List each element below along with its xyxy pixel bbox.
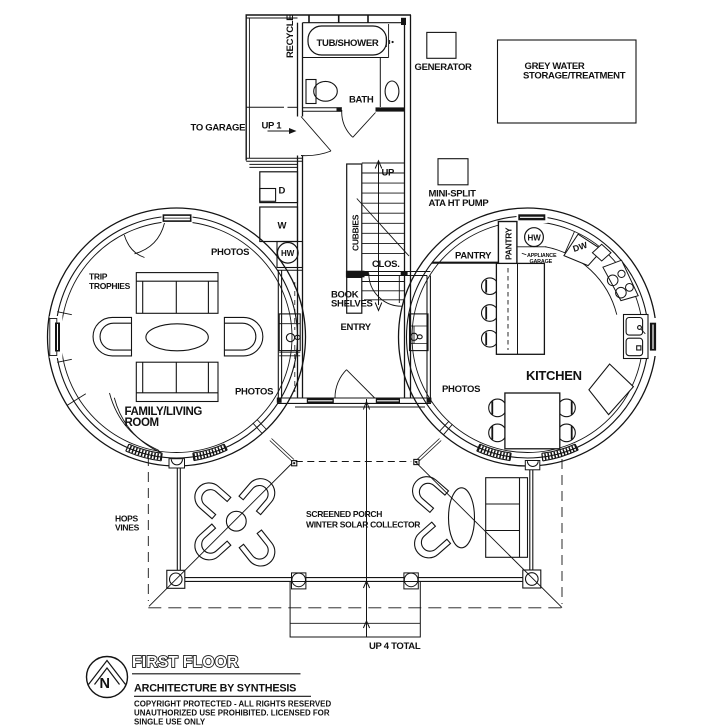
svg-text:GENERATOR: GENERATOR <box>415 62 473 73</box>
svg-text:PANTRY: PANTRY <box>455 251 492 262</box>
svg-text:UP 1: UP 1 <box>262 121 283 132</box>
svg-text:TUB/SHOWER: TUB/SHOWER <box>317 38 379 49</box>
svg-text:CUBBIES: CUBBIES <box>351 214 361 251</box>
svg-text:RECYCLE: RECYCLE <box>285 15 296 58</box>
svg-text:SINGLE USE ONLY: SINGLE USE ONLY <box>134 718 206 726</box>
svg-text:SHELVES: SHELVES <box>331 299 373 310</box>
svg-text:BATH: BATH <box>349 95 374 106</box>
svg-text:TROPHIES: TROPHIES <box>89 281 131 291</box>
svg-text:TO GARAGE: TO GARAGE <box>191 123 246 134</box>
svg-text:STORAGE/TREATMENT: STORAGE/TREATMENT <box>523 71 626 82</box>
svg-text:CLOS.: CLOS. <box>372 259 400 270</box>
svg-text:ENTRY: ENTRY <box>341 322 372 333</box>
svg-text:D: D <box>279 186 286 197</box>
svg-text:TRIP: TRIP <box>89 272 108 282</box>
svg-text:PHOTOS: PHOTOS <box>235 387 273 398</box>
svg-text:W: W <box>278 221 287 232</box>
svg-text:N: N <box>100 676 110 692</box>
svg-text:GARAGE: GARAGE <box>530 259 553 265</box>
svg-text:WINTER SOLAR COLLECTOR: WINTER SOLAR COLLECTOR <box>306 520 420 530</box>
svg-text:FIRST FLOOR: FIRST FLOOR <box>132 654 239 671</box>
svg-text:PHOTOS: PHOTOS <box>211 247 249 258</box>
svg-text:UNAUTHORIZED USE PROHIBITED. L: UNAUTHORIZED USE PROHIBITED. LICENSED FO… <box>134 709 330 718</box>
svg-text:PHOTOS: PHOTOS <box>442 384 480 395</box>
svg-text:VINES: VINES <box>115 523 140 533</box>
svg-text:UP 4 TOTAL: UP 4 TOTAL <box>369 641 421 652</box>
svg-text:HW: HW <box>281 249 295 258</box>
svg-text:ARCHITECTURE BY SYNTHESIS: ARCHITECTURE BY SYNTHESIS <box>134 683 296 695</box>
svg-text:HW: HW <box>528 234 542 243</box>
svg-text:ATA HT PUMP: ATA HT PUMP <box>429 198 490 209</box>
svg-text:UP: UP <box>382 168 396 179</box>
svg-text:ROOM: ROOM <box>125 417 159 429</box>
svg-text:SCREENED PORCH: SCREENED PORCH <box>306 509 382 519</box>
svg-text:PANTRY: PANTRY <box>504 227 514 260</box>
svg-text:KITCHEN: KITCHEN <box>526 368 582 383</box>
svg-text:COPYRIGHT PROTECTED - ALL RIGH: COPYRIGHT PROTECTED - ALL RIGHTS RESERVE… <box>134 700 331 709</box>
